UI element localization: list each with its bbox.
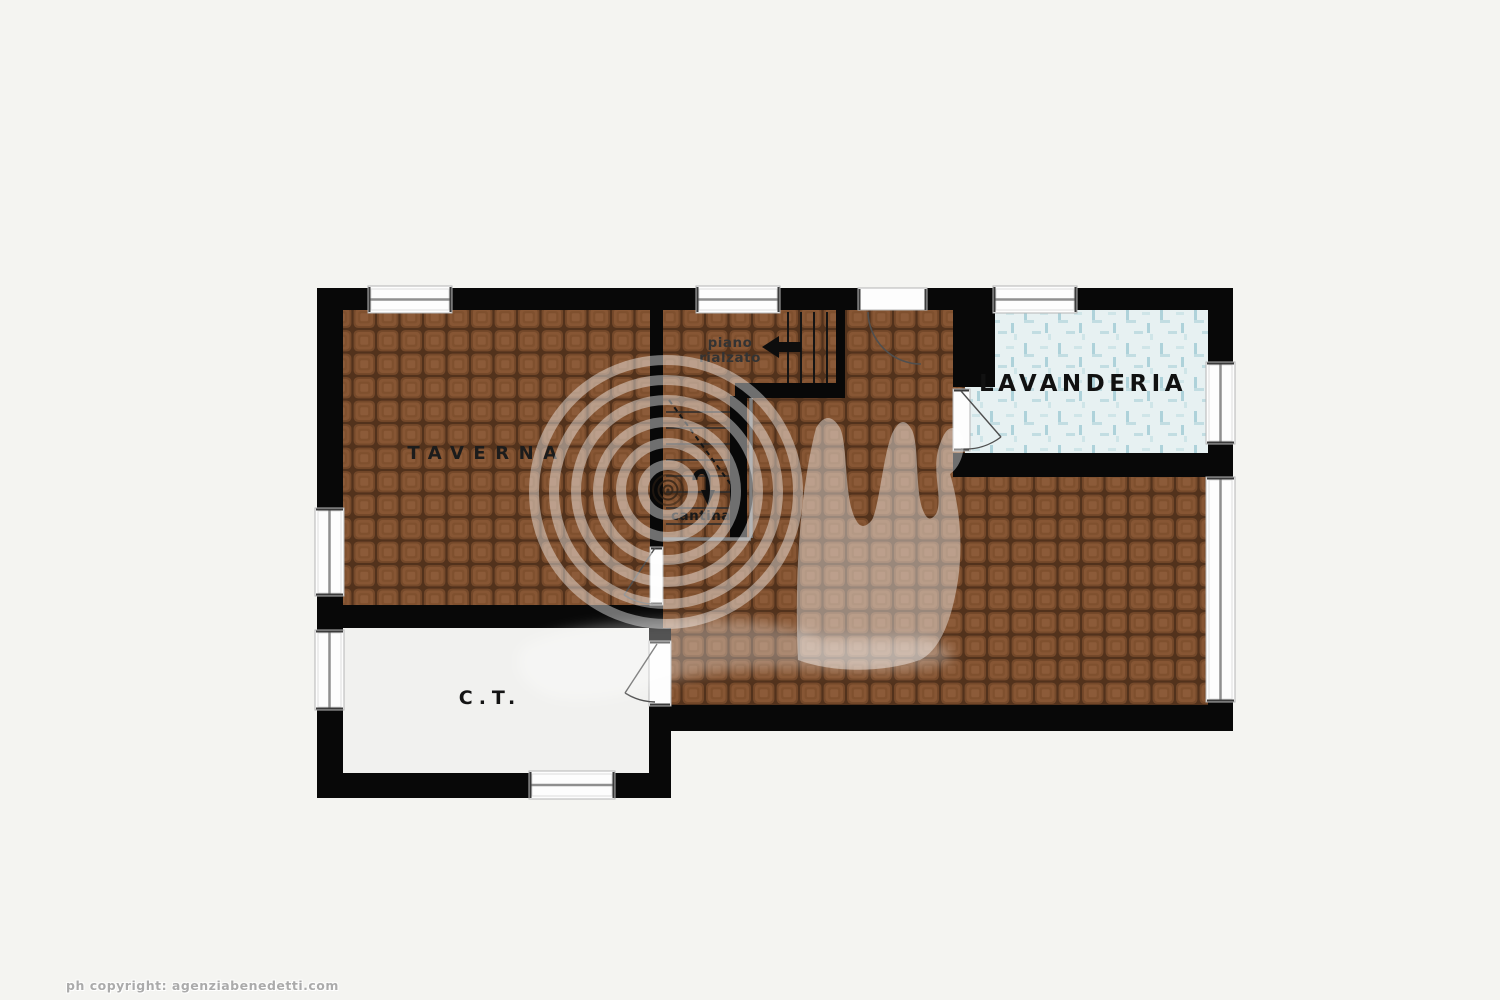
snail-shell-center (653, 475, 683, 505)
window-right-lavanderia (1206, 362, 1235, 444)
room-label-lavanderia: LAVANDERIA (979, 371, 1187, 397)
stairs-label-piano: piano (708, 335, 753, 351)
copyright-text: ph copyright: agenziabenedetti.com (66, 978, 339, 993)
wall-stair-upper-right (836, 310, 845, 385)
window-left-ct (315, 630, 344, 710)
window-right-main (1206, 477, 1235, 702)
window-top-stairs (696, 286, 780, 313)
wall-ct-bottom (317, 773, 671, 798)
window-top-lavanderia (993, 286, 1077, 313)
room-label-ct: C.T. (459, 687, 521, 709)
wall-bottom-main (649, 705, 1233, 731)
window-left-taverna (315, 508, 344, 596)
floorplan-image: TAVERNA LAVANDERIA C.T. piano rialzato c… (0, 0, 1500, 1000)
window-bottom-ct (529, 771, 615, 799)
window-top-taverna (368, 286, 452, 313)
floorplan-svg: TAVERNA LAVANDERIA C.T. piano rialzato c… (0, 0, 1500, 1000)
wall-lavanderia-bottom (953, 453, 1233, 477)
